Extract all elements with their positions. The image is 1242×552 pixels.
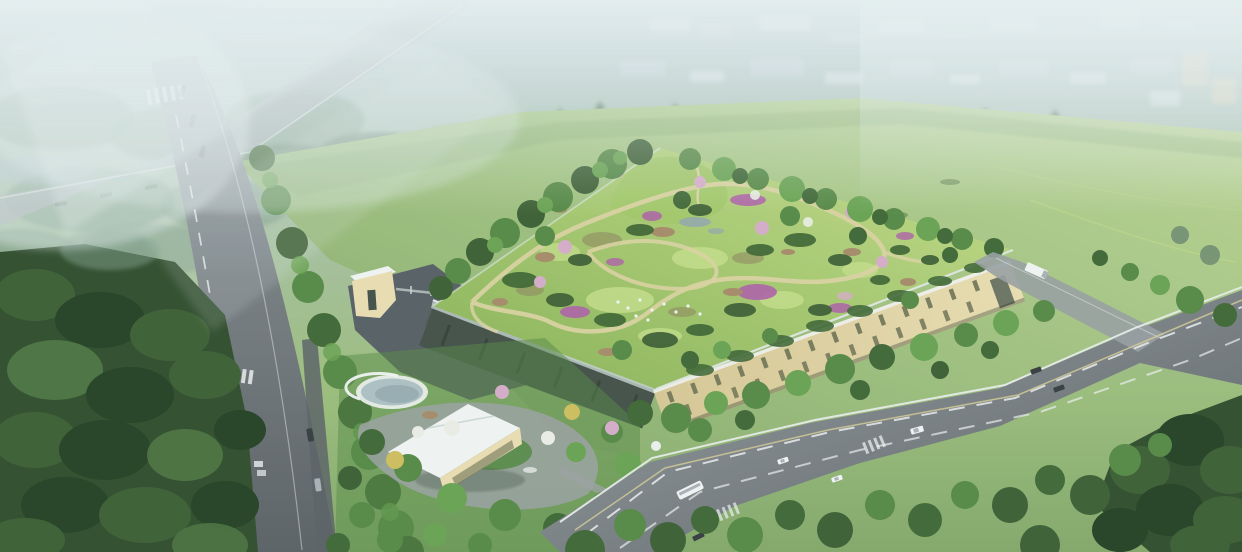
fog-overlays: [0, 0, 1242, 552]
aerial-rendering: [0, 0, 1242, 552]
atmosphere-tint: [0, 0, 1242, 552]
rendering-canvas: [0, 0, 1242, 552]
